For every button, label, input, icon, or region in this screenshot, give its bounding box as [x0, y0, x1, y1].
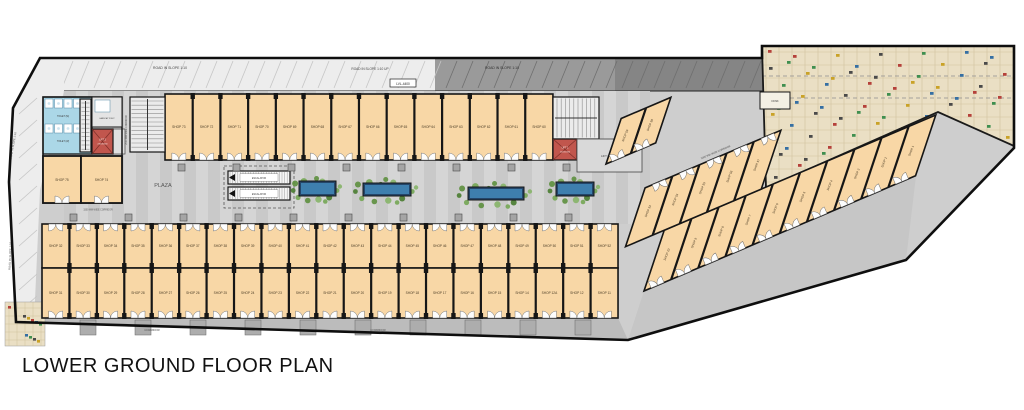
- car-mark: [774, 176, 778, 179]
- staircase-west: [130, 97, 165, 152]
- car-mark: [852, 134, 856, 137]
- shop-label: SHOP 20: [351, 291, 365, 295]
- lift-label: LIFT 2: [99, 139, 107, 142]
- shop-label: SHOP 44: [378, 244, 392, 248]
- road-label: ROAD IN SLOPE 1:10 UP: [351, 67, 388, 71]
- shop-label: SHOP 28: [131, 291, 145, 295]
- car-mark: [768, 50, 772, 53]
- plaza-column: [180, 214, 187, 221]
- foliage: [383, 177, 388, 182]
- car-mark: [782, 84, 786, 87]
- car-mark: [25, 334, 28, 337]
- car-mark: [814, 112, 818, 115]
- foliage: [338, 184, 342, 188]
- shop-label: SHOP 18: [406, 291, 420, 295]
- plaza-column: [70, 214, 77, 221]
- shop-block-west: SHOP 75SHOP 74: [43, 156, 122, 203]
- car-mark: [771, 113, 775, 116]
- car-mark: [990, 56, 994, 59]
- car-mark: [887, 93, 891, 96]
- car-mark: [949, 103, 953, 106]
- car-mark: [831, 77, 835, 80]
- shop-label: SHOP 70: [255, 125, 269, 129]
- water-feature: [558, 184, 592, 194]
- car-mark: [857, 111, 861, 114]
- corridor-column: [300, 320, 316, 335]
- shop-label: SHOP 67: [338, 125, 352, 129]
- car-mark: [898, 64, 902, 67]
- shop-label: SHOP 25: [214, 291, 228, 295]
- road-label: ROAD IN SLOPE 1:10: [485, 66, 519, 70]
- car-mark: [825, 83, 829, 86]
- car-mark: [27, 317, 30, 320]
- car-mark: [820, 106, 824, 109]
- shop-label: SHOP 38: [214, 244, 228, 248]
- shop-label: SHOP 60: [532, 125, 546, 129]
- car-mark: [922, 52, 926, 55]
- shop-label: SHOP 73: [172, 125, 186, 129]
- shop-row-lower: SHOP 31SHOP 30SHOP 29SHOP 28SHOP 27SHOP …: [42, 267, 618, 319]
- shop-label: SHOP 29: [104, 291, 118, 295]
- shop-label: SHOP 36: [159, 244, 173, 248]
- shop-label: SHOP 40: [268, 244, 282, 248]
- plaza-column: [565, 214, 572, 221]
- corridor-column: [465, 320, 481, 335]
- plaza-column: [563, 164, 570, 171]
- foliage: [562, 198, 568, 204]
- shop-label: SHOP 22: [296, 291, 310, 295]
- shop-label: SHOP 27: [159, 291, 173, 295]
- toilet-w-label: TOILET (W): [57, 141, 70, 143]
- kiosk: KIOSK: [760, 92, 790, 109]
- car-mark: [779, 153, 783, 156]
- car-mark: [801, 95, 805, 98]
- water-feature: [301, 183, 334, 194]
- car-mark: [955, 97, 959, 100]
- foliage: [292, 181, 298, 187]
- car-mark: [1003, 73, 1007, 76]
- car-mark: [785, 147, 789, 150]
- foliage: [572, 177, 577, 182]
- foliage: [305, 198, 311, 204]
- plan-title: LOWER GROUND FLOOR PLAN: [22, 355, 334, 378]
- corridor-label: CORRIDOR: [144, 328, 159, 332]
- foliage: [478, 203, 484, 209]
- shop-label: SHOP 19: [378, 291, 392, 295]
- car-mark: [855, 65, 859, 68]
- foliage: [494, 201, 500, 207]
- car-mark: [839, 117, 843, 120]
- lift-size-label: 2400X2400: [560, 152, 571, 154]
- car-mark: [33, 338, 36, 341]
- foliage: [581, 200, 586, 205]
- shop-label: SHOP 51: [570, 244, 584, 248]
- shop-label: SHOP 74: [95, 178, 109, 182]
- car-mark: [911, 81, 915, 84]
- car-mark: [998, 96, 1002, 99]
- shop-label: SHOP 23: [268, 291, 282, 295]
- foliage: [505, 204, 510, 209]
- lift-1: LIFT 12400X2400: [553, 139, 577, 160]
- foliage: [464, 200, 469, 205]
- foliage: [314, 176, 319, 181]
- shop-label: SHOP 71: [228, 125, 242, 129]
- road-label: ROAD IN SLOPE 1:10: [153, 66, 187, 70]
- foliage: [395, 200, 400, 205]
- shop-label: SHOP 64: [422, 125, 436, 129]
- plaza-column: [235, 214, 242, 221]
- shop-label: SHOP 35: [131, 244, 145, 248]
- foliage: [291, 188, 296, 193]
- car-mark: [795, 101, 799, 104]
- car-mark: [917, 75, 921, 78]
- shop-label: SHOP 50: [543, 244, 557, 248]
- car-mark: [769, 67, 773, 70]
- car-mark: [836, 54, 840, 57]
- foliage: [414, 185, 418, 189]
- car-mark: [806, 72, 810, 75]
- shop-label: SHOP 12: [570, 291, 584, 295]
- plaza-column: [178, 164, 185, 171]
- plaza-column: [290, 214, 297, 221]
- corridor-column: [575, 320, 591, 335]
- plaza-column: [345, 214, 352, 221]
- plaza-column: [398, 164, 405, 171]
- shop-row-plaza: SHOP 32SHOP 33SHOP 34SHOP 35SHOP 36SHOP …: [42, 223, 618, 269]
- shop-label: SHOP 16: [460, 291, 474, 295]
- shop-label: SHOP 15: [488, 291, 502, 295]
- water-feature: [365, 185, 409, 194]
- car-mark: [844, 94, 848, 97]
- car-mark: [37, 340, 40, 343]
- plaza-column: [400, 214, 407, 221]
- foliage: [596, 185, 600, 189]
- shop-label: SHOP 33: [76, 244, 90, 248]
- foliage: [528, 189, 532, 193]
- car-mark: [979, 85, 983, 88]
- shop-label: SHOP 75: [55, 178, 69, 182]
- shop-label: SHOP 46: [433, 244, 447, 248]
- car-mark: [930, 92, 934, 95]
- staircase-toilet-block: [80, 99, 91, 152]
- foliage: [323, 199, 328, 204]
- shop-label: SHOP 69: [283, 125, 297, 129]
- shop-label: SHOP 21: [323, 291, 337, 295]
- plaza-column: [233, 164, 240, 171]
- foliage: [459, 186, 465, 192]
- car-mark: [965, 51, 969, 54]
- shop-label: SHOP 32: [49, 244, 63, 248]
- car-mark: [987, 125, 991, 128]
- car-mark: [787, 61, 791, 64]
- toilet-m-label: TOILET (M): [57, 116, 69, 118]
- foliage: [385, 197, 391, 203]
- shop-label: SHOP 63: [449, 125, 463, 129]
- shop-label: SHOP 14: [515, 291, 529, 295]
- car-mark: [822, 152, 826, 155]
- car-mark: [8, 306, 11, 309]
- plaza-column: [455, 214, 462, 221]
- car-mark: [876, 122, 880, 125]
- shop-label: SHOP 66: [366, 125, 380, 129]
- car-mark: [941, 63, 945, 66]
- staircase-central: [553, 97, 599, 139]
- shop-label: SHOP 49: [515, 244, 529, 248]
- shop-label: SHOP 48: [488, 244, 502, 248]
- corridor-column: [80, 320, 96, 335]
- shop-label: SHOP 42: [323, 244, 337, 248]
- car-mark: [936, 86, 940, 89]
- shop-label: SHOP 62: [477, 125, 491, 129]
- shop-label: SHOP 65: [394, 125, 408, 129]
- car-mark: [960, 74, 964, 77]
- shop-shop-74: SHOP 74: [81, 156, 122, 203]
- car-mark: [798, 164, 802, 167]
- car-mark: [874, 76, 878, 79]
- floor-plan-page: SHOP 73SHOP 72SHOP 71SHOP 70SHOP 69SHOP …: [0, 0, 1024, 410]
- level-badge: LVL-4400: [390, 79, 416, 87]
- car-mark: [984, 62, 988, 65]
- water-feature: [470, 189, 522, 198]
- corridor-column: [520, 320, 536, 335]
- shop-label: SHOP 72: [200, 125, 214, 129]
- lift-label: LIFT 1: [562, 147, 570, 150]
- shop-label: SHOP 61: [505, 125, 519, 129]
- car-mark: [973, 91, 977, 94]
- lift-size-label: 2300X2600: [97, 144, 108, 146]
- foliage: [372, 199, 378, 205]
- car-mark: [893, 87, 897, 90]
- shop-label: SHOP 39: [241, 244, 255, 248]
- plaza-column: [508, 164, 515, 171]
- shop-label: SHOP 41: [296, 244, 310, 248]
- plaza-column: [343, 164, 350, 171]
- foliage: [548, 189, 553, 194]
- handicap-toilet: HANDICAP TOILET: [92, 97, 122, 127]
- car-mark: [868, 82, 872, 85]
- floor-plan-drawing: SHOP 73SHOP 72SHOP 71SHOP 70SHOP 69SHOP …: [0, 0, 1024, 410]
- plaza-label: PLAZA: [154, 183, 172, 189]
- plaza-column: [125, 214, 132, 221]
- foliage: [549, 181, 555, 187]
- lift-2: LIFT 22300X2600: [92, 129, 113, 154]
- car-mark: [793, 55, 797, 58]
- shop-label: SHOP 30: [76, 291, 90, 295]
- shop-label: SHOP 24: [241, 291, 255, 295]
- car-mark: [809, 135, 813, 138]
- foliage: [457, 193, 462, 198]
- car-mark: [968, 114, 972, 117]
- shop-row-top: SHOP 73SHOP 72SHOP 71SHOP 70SHOP 69SHOP …: [165, 93, 553, 161]
- car-mark: [790, 124, 794, 127]
- shop-label: SHOP 37: [186, 244, 200, 248]
- lift-2-lobby: [113, 129, 125, 154]
- foliage: [353, 189, 358, 194]
- shop-label: SHOP 52: [598, 244, 612, 248]
- car-mark: [804, 158, 808, 161]
- car-mark: [29, 336, 32, 339]
- shop-shop-75: SHOP 75: [43, 156, 81, 203]
- car-mark: [1006, 136, 1010, 139]
- car-mark: [828, 146, 832, 149]
- car-mark: [882, 116, 886, 119]
- plaza-column: [288, 164, 295, 171]
- level-badge-label: LVL-4400: [396, 82, 410, 86]
- plaza-column: [453, 164, 460, 171]
- foliage: [573, 197, 579, 203]
- car-mark: [849, 71, 853, 74]
- car-mark: [23, 315, 26, 318]
- shop-label: SHOP 45: [406, 244, 420, 248]
- corridor-column: [245, 320, 261, 335]
- car-mark: [906, 104, 910, 107]
- car-mark: [863, 105, 867, 108]
- car-mark: [812, 66, 816, 69]
- car-mark: [992, 102, 996, 105]
- underlay-patch: [5, 302, 45, 346]
- car-mark: [879, 53, 883, 56]
- escalator-label: ESCALATOR: [252, 193, 267, 196]
- shop-label: SHOP 11: [598, 291, 611, 295]
- plaza-column: [510, 214, 517, 221]
- corridor-1500-label: 1500 MM WIDE CORRIDOR: [83, 210, 113, 212]
- escalator-label: ESCALATOR: [252, 177, 267, 180]
- foliage: [359, 196, 364, 201]
- foliage: [315, 196, 321, 202]
- shop-label: SHOP 47: [460, 244, 474, 248]
- shop-label: SHOP 26: [186, 291, 200, 295]
- kiosk-label: KIOSK: [771, 100, 779, 103]
- shop-label: SHOP 43: [351, 244, 365, 248]
- handicap-toilet-label: HANDICAP TOILET: [99, 117, 114, 120]
- shop-label: SHOP 68: [311, 125, 325, 129]
- car-mark: [833, 123, 837, 126]
- shop-label: SHOP 31: [49, 291, 63, 295]
- foliage: [492, 181, 497, 186]
- shop-label: SHOP 17: [433, 291, 447, 295]
- shop-label: SHOP 12A: [542, 291, 558, 295]
- shop-label: SHOP 34: [104, 244, 118, 248]
- corridor-2000-label: 2000 MM WIDE CORRIDOR: [126, 115, 128, 145]
- foliage: [355, 182, 361, 188]
